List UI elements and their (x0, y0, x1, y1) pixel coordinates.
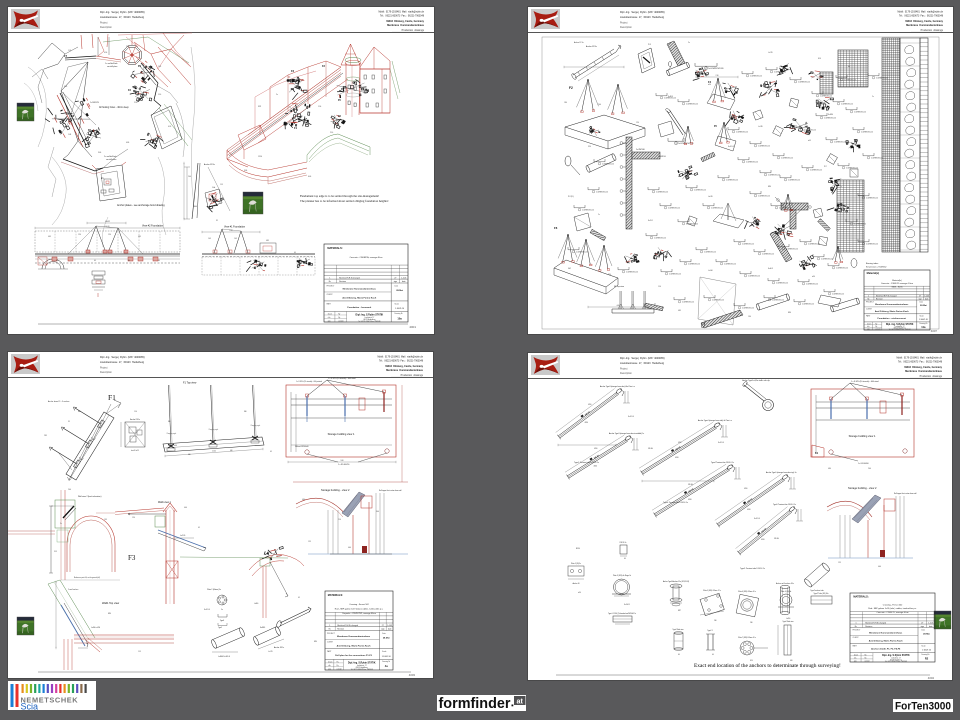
svg-text:Revision: Revision (876, 298, 883, 300)
svg-text:Storage building - view 2: Storage building - view 2 (321, 488, 350, 492)
svg-text:Date: Date (921, 629, 925, 632)
svg-text:Anchor F3 1x: Anchor F3 1x (274, 646, 284, 649)
svg-text:3.60: 3.60 (98, 152, 101, 154)
svg-text:0.60: 0.60 (194, 206, 197, 208)
svg-text:4310: 4310 (761, 539, 765, 541)
svg-text:drawn: drawn (328, 314, 332, 316)
svg-text:2x DWR5/70/L.20: 2x DWR5/70/L.20 (821, 259, 833, 261)
svg-text:Revision: Revision (865, 626, 872, 628)
svg-text:2x DWR5/70/L.20: 2x DWR5/70/L.20 (781, 158, 793, 160)
svg-text:69094 Dilsberg, Castle, Germa: 69094 Dilsberg, Castle, Germany (905, 20, 943, 23)
svg-text:2x DWR5/70/L.20: 2x DWR5/70/L.20 (688, 264, 700, 266)
svg-text:Fundament top edge is to be se: Fundament top edge is to be settled thro… (300, 194, 379, 198)
svg-text:PROJECT: PROJECT (853, 630, 861, 632)
svg-text:4.60: 4.60 (616, 305, 619, 307)
svg-text:Drawing Nr: Drawing Nr (919, 323, 927, 325)
svg-text:Ry: Ry (864, 657, 866, 659)
svg-text:2x DWR5/70/L.20: 2x DWR5/70/L.20 (682, 302, 694, 304)
svg-text:Sketched R.H.St.changed: Sketched R.H.St.changed (339, 276, 360, 279)
svg-text:2x DWR5/70/L.20: 2x DWR5/70/L.20 (776, 283, 788, 285)
svg-text:2x DWR5/70/L.20: 2x DWR5/70/L.20 (810, 170, 822, 172)
svg-text:2x DWR5/70/L.20: 2x DWR5/70/L.20 (686, 104, 698, 106)
svg-text:3.20: 3.20 (64, 86, 67, 88)
svg-text:2x DWR5/70/L.20: 2x DWR5/70/L.20 (854, 112, 866, 114)
svg-text:1.50: 1.50 (318, 106, 321, 108)
svg-text:Ry: Ry (338, 317, 340, 319)
svg-text:2x DWR5/70/L.20: 2x DWR5/70/L.20 (742, 244, 754, 246)
svg-text:1: 1 (855, 622, 856, 624)
svg-text:Anchor Type3 (storage barn doo: Anchor Type3 (storage barn door-to-middl… (609, 432, 644, 435)
svg-text:Ry: Ry (338, 314, 340, 316)
svg-text:Roll tappet for traction from: Roll tappet for traction from wall (894, 492, 917, 495)
svg-text:1.15: 1.15 (138, 651, 141, 653)
svg-text:RD 20 2x: RD 20 2x (620, 542, 627, 544)
svg-text:Anchor Type3 (storage barn doo: Anchor Type3 (storage barn door) 8m Poin… (600, 385, 635, 388)
svg-text:Liselottestrasse 17, 69123: Liselottestrasse 17, 69123 Heidelberg (620, 362, 665, 365)
svg-text:Anchor Type5 (storage barn-doo: Anchor Type5 (storage barn-door tap) 1x (766, 471, 797, 474)
svg-text:40: 40 (712, 654, 714, 656)
svg-text:Anchor beam F1 - 3 anchors: Anchor beam F1 - 3 anchors (48, 400, 70, 403)
svg-text:Revision: Revision (337, 629, 344, 631)
svg-text:1.25: 1.25 (308, 541, 311, 543)
svg-text:2x DWR5/70/L.20: 2x DWR5/70/L.20 (704, 252, 716, 254)
svg-text:D=244.5: D=244.5 (624, 604, 630, 606)
svg-text:Rod - SBP galvan 1x19 (talur: Rod - SBP galvan 1x19 (talur.) cables, t… (868, 607, 917, 610)
svg-text:2x DWR5/70/L.20: 2x DWR5/70/L.20 (824, 118, 836, 120)
svg-text:D=101.6: D=101.6 (728, 146, 734, 148)
svg-text:PART: PART (327, 302, 331, 305)
svg-text:Tel.: 06221-830673 Fax.: 06: Tel.: 06221-830673 Fax.: 06221-7963048 (899, 15, 944, 17)
svg-text:2x DWR5/70/L.20: 2x DWR5/70/L.20 (841, 104, 853, 106)
svg-text:4.50: 4.50 (104, 52, 107, 54)
svg-text:28.Mai: 28.Mai (396, 290, 403, 292)
svg-text:1.4.05: 1.4.05 (387, 625, 392, 627)
svg-text:8x M16: 8x M16 (828, 114, 833, 116)
svg-text:2x DWR5/70/L.20: 2x DWR5/70/L.20 (726, 180, 738, 182)
svg-text:2x DWR5/70/L.20: 2x DWR5/70/L.20 (596, 192, 608, 194)
svg-text:RD20: RD20 (576, 548, 580, 550)
svg-text:2x DWR5/70/L.20: 2x DWR5/70/L.20 (832, 294, 844, 296)
svg-text:PART: PART (866, 315, 870, 318)
svg-text:The planner has to be informed: The planner has to be informed about set… (300, 199, 388, 203)
svg-text:2x DWR5/70: 2x DWR5/70 (90, 102, 99, 104)
svg-text:3: 3 (676, 143, 677, 145)
svg-text:1.4b: 1.4b (212, 187, 215, 189)
svg-text:2x DWR5/70/L.20: 2x DWR5/70/L.20 (774, 72, 786, 74)
svg-text:Drawing Nr: Drawing Nr (921, 654, 929, 656)
svg-text:2.40: 2.40 (68, 489, 71, 491)
svg-text:Description: Description (100, 371, 113, 374)
svg-text:27: 27 (921, 622, 923, 624)
svg-text:see drill plans: see drill plans (107, 65, 117, 68)
svg-text:at: at (516, 696, 523, 705)
svg-text:Clamping angle: Clamping angle (209, 429, 219, 431)
svg-text:2x DWR5/70/L.20: 2x DWR5/70/L.20 (802, 304, 814, 306)
svg-text:1.35: 1.35 (104, 519, 107, 521)
svg-text:860: 860 (244, 411, 247, 413)
svg-text:40: 40 (158, 260, 160, 262)
svg-text:Wall1 view 1: Wall1 view 1 (158, 502, 172, 504)
svg-text:Concrete - C30/B 25 average 4.: Concrete - C30/B 25 average 4.0cm (881, 282, 913, 285)
svg-text:2.80: 2.80 (126, 46, 129, 48)
svg-text:Dipl.-Ing. S.Rybin STATIK: Dipl.-Ing. S.Rybin STATIK (356, 313, 384, 316)
svg-text:2x DWR5/70/L.20: 2x DWR5/70/L.20 (668, 208, 680, 210)
svg-text:Liselottestrasse 17, 69123: Liselottestrasse 17, 69123 Heidelberg (100, 16, 145, 19)
svg-text:F5: F5 (338, 99, 341, 102)
svg-text:3.15: 3.15 (54, 551, 57, 553)
svg-text:Mobil: 0179-1019481 Mail: s: Mobil: 0179-1019481 Mail: statik@rybin.d… (379, 10, 425, 13)
svg-text:Drill plan for the connections: Drill plan for the connections F1-F3 (335, 654, 372, 657)
svg-text:Tel. 06221-830673 Fax. 796304: Tel. 06221-830673 Fax. 7963048 (358, 321, 380, 323)
svg-text:12.50: 12.50 (258, 156, 262, 158)
svg-text:ForTen3000: ForTen3000 (895, 701, 951, 713)
svg-text:Anchor Type3 Anchors F1a (D2,5: Anchor Type3 Anchors F1a (D2,5D D8) (663, 580, 690, 583)
svg-text:1.15: 1.15 (220, 184, 223, 186)
svg-text:2x DWR5/70/L.20: 2x DWR5/70/L.20 (626, 272, 638, 274)
svg-text:Membrane Kommandantenhaus: Membrane Kommandantenhaus (386, 369, 424, 372)
svg-text:Clamping angle: Clamping angle (251, 425, 261, 427)
svg-text:1: 1 (329, 625, 330, 627)
svg-text:chk.: chk. (328, 665, 331, 667)
svg-text:Liselottestrasse 17, 69123: Liselottestrasse 17, 69123 Heidelberg (100, 361, 145, 364)
svg-text:Ry: Ry (864, 654, 866, 656)
svg-text:1.80: 1.80 (564, 102, 567, 104)
svg-text:1.30: 1.30 (748, 316, 751, 318)
svg-text:2.40: 2.40 (188, 176, 191, 178)
svg-text:L=860 D=101.6: L=860 D=101.6 (218, 656, 230, 658)
svg-text:4003: 4003 (409, 673, 416, 677)
svg-text:F1 Top view: F1 Top view (183, 382, 196, 385)
svg-text:2x DWR5/70/L.20: 2x DWR5/70/L.20 (724, 264, 736, 266)
svg-text:345 kN: 345 kN (774, 538, 779, 540)
svg-text:2x wall anchors: 2x wall anchors (68, 588, 79, 591)
svg-text:1.05: 1.05 (234, 238, 237, 240)
svg-text:4310: 4310 (744, 488, 748, 490)
svg-text:345 kN: 345 kN (688, 487, 695, 493)
svg-text:60: 60 (678, 654, 680, 656)
svg-text:F3: F3 (128, 554, 136, 562)
svg-text:Production drawings: Production drawings (920, 375, 943, 378)
svg-text:860: 860 (78, 411, 81, 413)
svg-text:1.20: 1.20 (108, 234, 111, 236)
svg-text:69094 Dilsberg, Castle, Germa: 69094 Dilsberg, Castle, Germany (385, 365, 423, 368)
svg-text:Membrane Kommandantenhaus: Membrane Kommandantenhaus (337, 635, 371, 638)
svg-text:2.40: 2.40 (598, 104, 601, 106)
svg-text:Project: Project (100, 21, 108, 24)
svg-text:Drawing Nr: Drawing Nr (395, 313, 403, 315)
svg-text:2x DWR5/70/L.20: 2x DWR5/70/L.20 (866, 198, 878, 200)
svg-text:0.80: 0.80 (302, 499, 305, 501)
svg-text:Material(s): Material(s) (892, 279, 902, 282)
svg-text:4310: 4310 (678, 442, 682, 444)
svg-text:0.85: 0.85 (678, 310, 681, 312)
svg-text:1 x D5 600/90: 1 x D5 600/90 (338, 464, 349, 466)
svg-text:2x DWR5/70/L.20: 2x DWR5/70/L.20 (582, 210, 594, 212)
svg-text:10a: 10a (397, 316, 402, 320)
svg-text:sign: sign (394, 281, 397, 283)
svg-text:Pl.7: Pl.7 (824, 166, 827, 168)
svg-text:1.4.05: 1.4.05 (401, 277, 406, 279)
svg-text:M20: M20 (678, 176, 681, 178)
svg-text:40: 40 (128, 260, 130, 262)
svg-text:sign: sign (381, 629, 384, 631)
svg-text:4001: 4001 (409, 325, 416, 329)
svg-text:chk.: chk. (854, 657, 857, 659)
svg-text:Plate 2 (40mm) 5x: Plate 2 (40mm) 5x (207, 588, 221, 591)
svg-text:D=88.9: D=88.9 (260, 627, 265, 629)
svg-text:F2: F2 (569, 86, 573, 90)
svg-text:M16: M16 (788, 312, 791, 314)
svg-text:1.85: 1.85 (158, 66, 161, 68)
svg-text:Amt Dilsberg, Maria Farina Koc: Amt Dilsberg, Maria Farina Koch (337, 644, 371, 647)
svg-text:4310: 4310 (594, 448, 598, 450)
svg-text:2x DWR5/70/L.20: 2x DWR5/70/L.20 (834, 142, 846, 144)
svg-text:Ry: Ry (337, 665, 339, 667)
svg-text:2x DWR5/70/L.20: 2x DWR5/70/L.20 (711, 208, 723, 210)
svg-text:Dipl.-Ing. Sergej Rybin (MA: Dipl.-Ing. Sergej Rybin (MA° 4049065) (100, 11, 145, 14)
svg-text:View #1 Foundation: View #1 Foundation (224, 226, 246, 229)
svg-text:1.10: 1.10 (158, 94, 161, 96)
svg-text:2x DWR5/70/L.20: 2x DWR5/70/L.20 (861, 132, 873, 134)
svg-text:Type2: Type2 (218, 627, 222, 629)
svg-text:27: 27 (394, 277, 396, 279)
svg-text:Storage building view 1: Storage building view 1 (849, 434, 876, 438)
svg-text:Sketched R.H.St.changed: Sketched R.H.St.changed (337, 624, 358, 627)
svg-text:9.80: 9.80 (340, 460, 343, 462)
svg-text:660: 660 (188, 454, 191, 456)
svg-text:4310: 4310 (588, 404, 592, 406)
svg-text:Tel.: 06221-830673 Fax.: 06: Tel.: 06221-830673 Fax.: 06221-7963048 (379, 360, 424, 362)
svg-text:Scia: Scia (21, 702, 39, 710)
svg-text:F3: F3 (322, 65, 325, 68)
svg-text:F6: F6 (338, 115, 341, 118)
svg-text:L=650: L=650 (786, 618, 790, 620)
svg-text:Type2 Side view: Type2 Side view (783, 621, 795, 623)
svg-text:4a: 4a (385, 664, 388, 668)
svg-text:40: 40 (56, 260, 58, 262)
svg-text:F3: F3 (128, 89, 131, 92)
svg-text:R2: R2 (925, 657, 929, 661)
svg-text:2x DWR5/70/L.20: 2x DWR5/70/L.20 (768, 175, 780, 177)
svg-text:Type4 Tension tube D101.6 1x: Type4 Tension tube D101.6 1x (711, 461, 734, 464)
svg-text:Amt Dilsberg, Maria Farina Koc: Amt Dilsberg, Maria Farina Koch (869, 639, 903, 642)
svg-text:formfinder: formfinder (439, 696, 511, 711)
svg-text:PART: PART (327, 650, 331, 653)
svg-text:Storage building - view 2: Storage building - view 2 (848, 486, 877, 490)
svg-text:Clamping angle: Clamping angle (167, 433, 177, 435)
svg-text:0.80: 0.80 (828, 468, 831, 470)
svg-text:260: 260 (750, 622, 753, 624)
svg-text:2x: 2x (276, 94, 278, 96)
svg-text:D=101.6: D=101.6 (628, 416, 634, 418)
svg-text:2xL-DWR5/70/5/120: 2xL-DWR5/70/5/120 (708, 68, 723, 70)
svg-text:Tel.: 06221-830673 Fax.: 06: Tel.: 06221-830673 Fax.: 06221-7963048 (380, 15, 425, 17)
svg-text:Project: Project (620, 21, 628, 24)
svg-text:Dipl.-Ing. Sergej Rybin (MA: Dipl.-Ing. Sergej Rybin (MA° 4049065) (100, 356, 145, 359)
svg-text:t=20: t=20 (578, 591, 581, 594)
svg-text:1.20: 1.20 (78, 234, 81, 236)
svg-text:F6 Top view: F6 Top view (614, 286, 625, 288)
svg-text:4310: 4310 (688, 499, 692, 501)
svg-text:F1: F1 (108, 393, 116, 402)
svg-text:2.85: 2.85 (44, 435, 47, 437)
svg-text:2x: 2x (60, 523, 62, 525)
svg-text:Description: Description (620, 372, 633, 375)
svg-text:CLIENT: CLIENT (866, 308, 872, 310)
svg-text:8.10: 8.10 (229, 230, 232, 232)
svg-text:Sketched R.H.St.changed: Sketched R.H.St.changed (876, 294, 897, 297)
svg-text:2x DWR5/70/L.20: 2x DWR5/70/L.20 (788, 180, 800, 182)
svg-text:Wall view 2 (back elevation): Wall view 2 (back elevation) (78, 495, 102, 498)
svg-text:2x DWR5/70/L.20: 2x DWR5/70/L.20 (694, 190, 706, 192)
svg-text:D20: D20 (750, 660, 753, 662)
svg-text:sign: sign (921, 626, 924, 628)
svg-text:1: 1 (868, 295, 869, 297)
svg-text:0.95: 0.95 (138, 236, 141, 238)
svg-text:Set pressure = 750kN/m2: Set pressure = 750kN/m2 (866, 266, 886, 269)
svg-text:1 x wall drill hole: 1 x wall drill hole (105, 62, 117, 65)
svg-text:2x DWR5/70/L.20: 2x DWR5/70/L.20 (772, 300, 784, 302)
svg-text:F1: F1 (294, 126, 298, 130)
svg-text:date: date (929, 625, 933, 628)
svg-text:sign: sign (918, 298, 921, 300)
svg-text:D=101.6: D=101.6 (754, 518, 760, 520)
svg-text:drawn: drawn (854, 654, 858, 656)
svg-text:2140: 2140 (212, 451, 216, 453)
svg-text:Description: Description (620, 26, 633, 29)
svg-text:Mobil: 0179-1019481 Mail: s: Mobil: 0179-1019481 Mail: statik@rybin.d… (378, 355, 424, 358)
svg-text:Tel.: 06221-830673 Fax.: 06: Tel.: 06221-830673 Fax.: 06221-7963048 (898, 361, 943, 363)
svg-text:Type2 Side view: Type2 Side view (673, 629, 685, 631)
svg-text:F2/1: F2/1 (258, 106, 261, 108)
svg-text:1:100/1:10: 1:100/1:10 (919, 319, 928, 321)
svg-text:D16: D16 (818, 58, 821, 60)
svg-text:2x DWR5/70/L.20: 2x DWR5/70/L.20 (762, 254, 774, 256)
svg-text:Project: Project (100, 366, 108, 369)
svg-text:4310: 4310 (585, 422, 589, 424)
svg-text:Plate 5 (D20) 4 Rows 12 x: Plate 5 (D20) 4 Rows 12 x (703, 589, 721, 592)
svg-text:Type2 anchor tube: Type2 anchor tube (810, 589, 823, 592)
svg-text:Material(s): Material(s) (867, 272, 880, 275)
svg-text:M27: M27 (678, 610, 681, 612)
svg-text:0.60: 0.60 (348, 547, 351, 549)
svg-text:Concrete - C30/B37A, averag: Concrete - C30/B37A, average 40cm (350, 256, 383, 259)
svg-text:date: date (925, 297, 929, 300)
svg-text:M24: M24 (108, 613, 111, 615)
svg-text:Dipl.-Ing. Sergej Rybin (MA: Dipl.-Ing. Sergej Rybin (MA° 4049065) (620, 357, 665, 360)
svg-text:Amt Dilsberg, Maria Farina Koc: Amt Dilsberg, Maria Farina Koch (875, 310, 909, 313)
svg-text:L=3.40: L=3.40 (708, 270, 713, 272)
svg-text:drawn: drawn (867, 323, 871, 325)
svg-text:MATERIALS:: MATERIALS: (853, 595, 868, 598)
svg-text:1:100/1:10: 1:100/1:10 (922, 650, 931, 652)
svg-text:6.40: 6.40 (308, 176, 311, 178)
svg-text:Scale: Scale (921, 645, 925, 647)
svg-text:Liselottestrasse 17, 69123: Liselottestrasse 17, 69123 Heidelberg (620, 16, 665, 19)
svg-text:2x DWR5/70/L.20: 2x DWR5/70/L.20 (836, 268, 848, 270)
svg-text:Plate 5 (20) 3x: Plate 5 (20) 3x (571, 562, 581, 565)
svg-text:Membrane Kommandantenhaus: Membrane Kommandantenhaus (869, 631, 903, 634)
svg-text:Plate 6 (D20) 4 Rows 10 x: Plate 6 (D20) 4 Rows 10 x (738, 590, 756, 593)
svg-text:0.40: 0.40 (184, 507, 187, 509)
svg-text:2.20: 2.20 (608, 274, 611, 276)
svg-text:Description: Description (100, 26, 113, 29)
svg-text:t=15: t=15 (808, 139, 811, 142)
svg-text:Date: Date (382, 632, 386, 635)
svg-text:40: 40 (294, 252, 296, 254)
svg-text:2.10: 2.10 (338, 519, 341, 521)
svg-text:D=60.3: D=60.3 (768, 268, 773, 270)
svg-text:Membrane Kommandantenhaus: Membrane Kommandantenhaus (875, 303, 909, 306)
svg-text:28.Mai: 28.Mai (383, 637, 390, 639)
svg-text:consult: consult (338, 319, 344, 322)
svg-text:D=88.9: D=88.9 (668, 96, 673, 98)
svg-text:860: 860 (168, 421, 171, 423)
svg-text:Pl.3: Pl.3 (648, 44, 651, 46)
svg-text:Type2 1: Type2 1 (707, 630, 713, 632)
svg-text:Anchor F2 1a: Anchor F2 1a (574, 41, 584, 44)
svg-text:K1: K1 (815, 452, 819, 455)
svg-text:Type5 Tension tube D101.6 1x: Type5 Tension tube D101.6 1x (773, 503, 796, 506)
svg-text:1: 1 (329, 277, 330, 279)
svg-text:5x: 5x (221, 609, 223, 611)
svg-text:345 kN: 345 kN (675, 445, 682, 451)
svg-text:1 x D 8/10 (10 strands) - 600: 1 x D 8/10 (10 strands) - 600 stainl. (851, 380, 880, 383)
svg-text:Ry: Ry (875, 323, 877, 325)
svg-text:14.20: 14.20 (106, 226, 110, 228)
svg-text:1 x D 8/10 (10 strands) - 600: 1 x D 8/10 (10 strands) - 600 stainl. (328, 377, 357, 380)
svg-text:660: 660 (230, 450, 233, 452)
svg-text:2x: 2x (872, 96, 874, 98)
svg-text:3.40: 3.40 (376, 511, 379, 513)
svg-text:Production drawings: Production drawings (921, 29, 944, 32)
svg-text:L=1.85: L=1.85 (758, 126, 763, 128)
svg-text:Mobil: 0179-1019481 Mail: s: Mobil: 0179-1019481 Mail: statik@rybin.d… (898, 10, 944, 13)
svg-text:3.20: 3.20 (588, 146, 591, 148)
svg-text:View #2 Foundation: View #2 Foundation (142, 225, 164, 228)
svg-text:Steel - S235: Steel - S235 (891, 285, 903, 288)
svg-text:1.4.05: 1.4.05 (924, 295, 929, 297)
svg-text:2x DWR5/70/L.20: 2x DWR5/70/L.20 (804, 130, 816, 132)
svg-text:MATERIALS:: MATERIALS: (327, 247, 342, 250)
svg-text:do=20 t=25: do=20 t=25 (131, 449, 139, 452)
svg-text:Ry: Ry (337, 661, 339, 663)
svg-text:4004: 4004 (928, 676, 935, 680)
svg-text:Drawing Nr: Drawing Nr (382, 661, 390, 663)
svg-text:chk.: chk. (867, 326, 870, 328)
svg-text:1.20: 1.20 (68, 50, 71, 52)
svg-text:1.20: 1.20 (132, 517, 135, 519)
svg-text:Anchor 16: Anchor 16 (573, 582, 580, 585)
svg-text:Anchor Type4 (storage barn sid: Anchor Type4 (storage barn side) 4x Poin… (698, 419, 732, 422)
svg-text:D=101.6: D=101.6 (204, 609, 210, 611)
svg-text:M20: M20 (314, 641, 317, 643)
svg-text:2x DWR5/70/L.20: 2x DWR5/70/L.20 (576, 252, 588, 254)
svg-text:Type2 Tube (D9) 10x: Type2 Tube (D9) 10x (814, 593, 829, 595)
svg-text:Anchor rod 4 anchors F4 x: Anchor rod 4 anchors F4 x (776, 582, 794, 585)
svg-text:6.40: 6.40 (105, 221, 108, 223)
svg-text:Roll tappet for traction from: Roll tappet for traction from wall (379, 489, 402, 492)
svg-text:F4: F4 (708, 80, 712, 84)
svg-text:Crossing - Ferrari 502: Crossing - Ferrari 502 (883, 604, 903, 606)
svg-text:Type4: Tension tube D101.6 1x: Type4: Tension tube D101.6 1x (663, 501, 688, 504)
svg-text:1.25: 1.25 (838, 562, 841, 564)
svg-text:PART: PART (853, 644, 857, 647)
svg-text:F6: F6 (554, 226, 558, 230)
svg-text:F6/1: F6/1 (568, 268, 571, 270)
svg-text:4310: 4310 (675, 457, 679, 459)
svg-text:Ry: Ry (875, 326, 877, 328)
